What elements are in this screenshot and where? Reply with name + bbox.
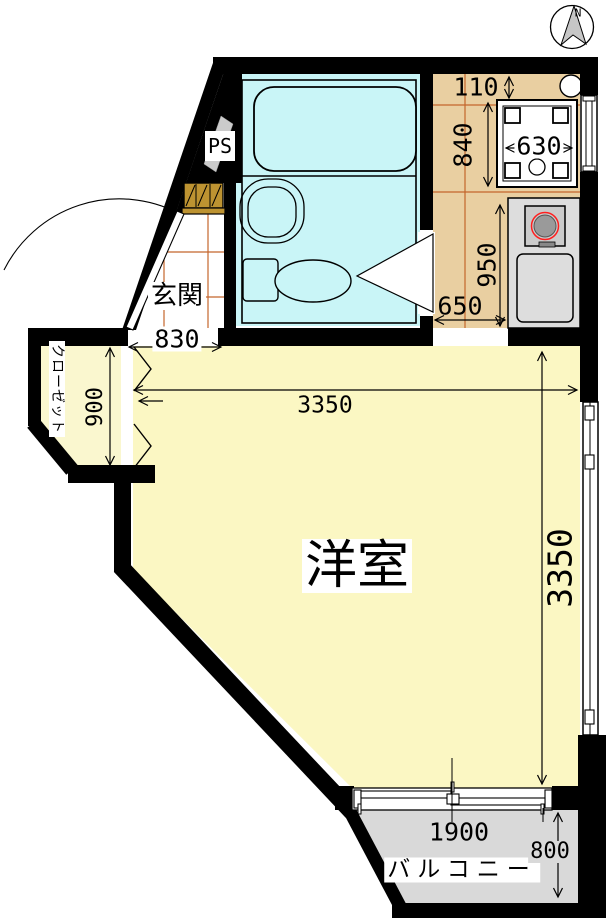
dim-800: 800 (528, 841, 572, 863)
dim-840: 840 (451, 122, 476, 167)
dim-1900: 1900 (429, 820, 489, 845)
western-room-label: 洋室 (302, 539, 412, 593)
pipe-space-label: PS (207, 135, 233, 157)
kitchen-counter (508, 198, 580, 328)
dim-110: 110 (453, 75, 498, 100)
dim-650: 650 (437, 294, 482, 319)
water-heater-icon (560, 75, 582, 97)
compass (551, 6, 594, 49)
drain-icon (529, 159, 545, 175)
wall-bottom (392, 903, 606, 918)
wall-room-left (114, 480, 131, 572)
balcony-label: バルコニー (384, 858, 540, 883)
window-right-tall (583, 402, 598, 735)
dim-830: 830 (152, 327, 201, 352)
toilet-tank (243, 259, 278, 301)
wall-right-2 (580, 172, 598, 402)
dim-630: 630 (514, 134, 563, 159)
wall-door-right-stub (552, 786, 580, 810)
entrance-label: 玄関 (148, 282, 206, 310)
compass-north-label: N (575, 8, 582, 19)
wall-closet-top (28, 328, 128, 346)
floor-plan: N PS 玄関 洋室 バルコニー クローゼット 110 840 630 950 … (0, 0, 612, 922)
wall-bath-left (224, 74, 236, 330)
wall-right-3 (578, 735, 606, 918)
window-upper-right (581, 95, 597, 172)
wall-bath-bottom (218, 328, 433, 346)
dim-3350-horizontal: 3350 (297, 395, 352, 418)
wall-right-1 (580, 57, 598, 95)
wall-kitchen-bottom (508, 328, 580, 346)
bathtub-icon (254, 87, 416, 171)
wall-closet-bottom (68, 465, 155, 483)
closet-threshold (121, 346, 132, 465)
sink-icon (517, 254, 573, 322)
wall-bath-right-upper (420, 74, 433, 230)
dim-950: 950 (475, 242, 500, 287)
shoe-cabinet (182, 183, 225, 214)
door-handle (358, 804, 361, 814)
wall-top (213, 57, 598, 74)
toilet-icon (275, 260, 351, 302)
closet-label: クローゼット (49, 341, 65, 437)
wall-bath-right-lower (420, 316, 433, 330)
dim-900: 900 (85, 387, 107, 427)
dim-3350-vertical: 3350 (544, 528, 577, 607)
wall-closet-left (28, 346, 41, 426)
